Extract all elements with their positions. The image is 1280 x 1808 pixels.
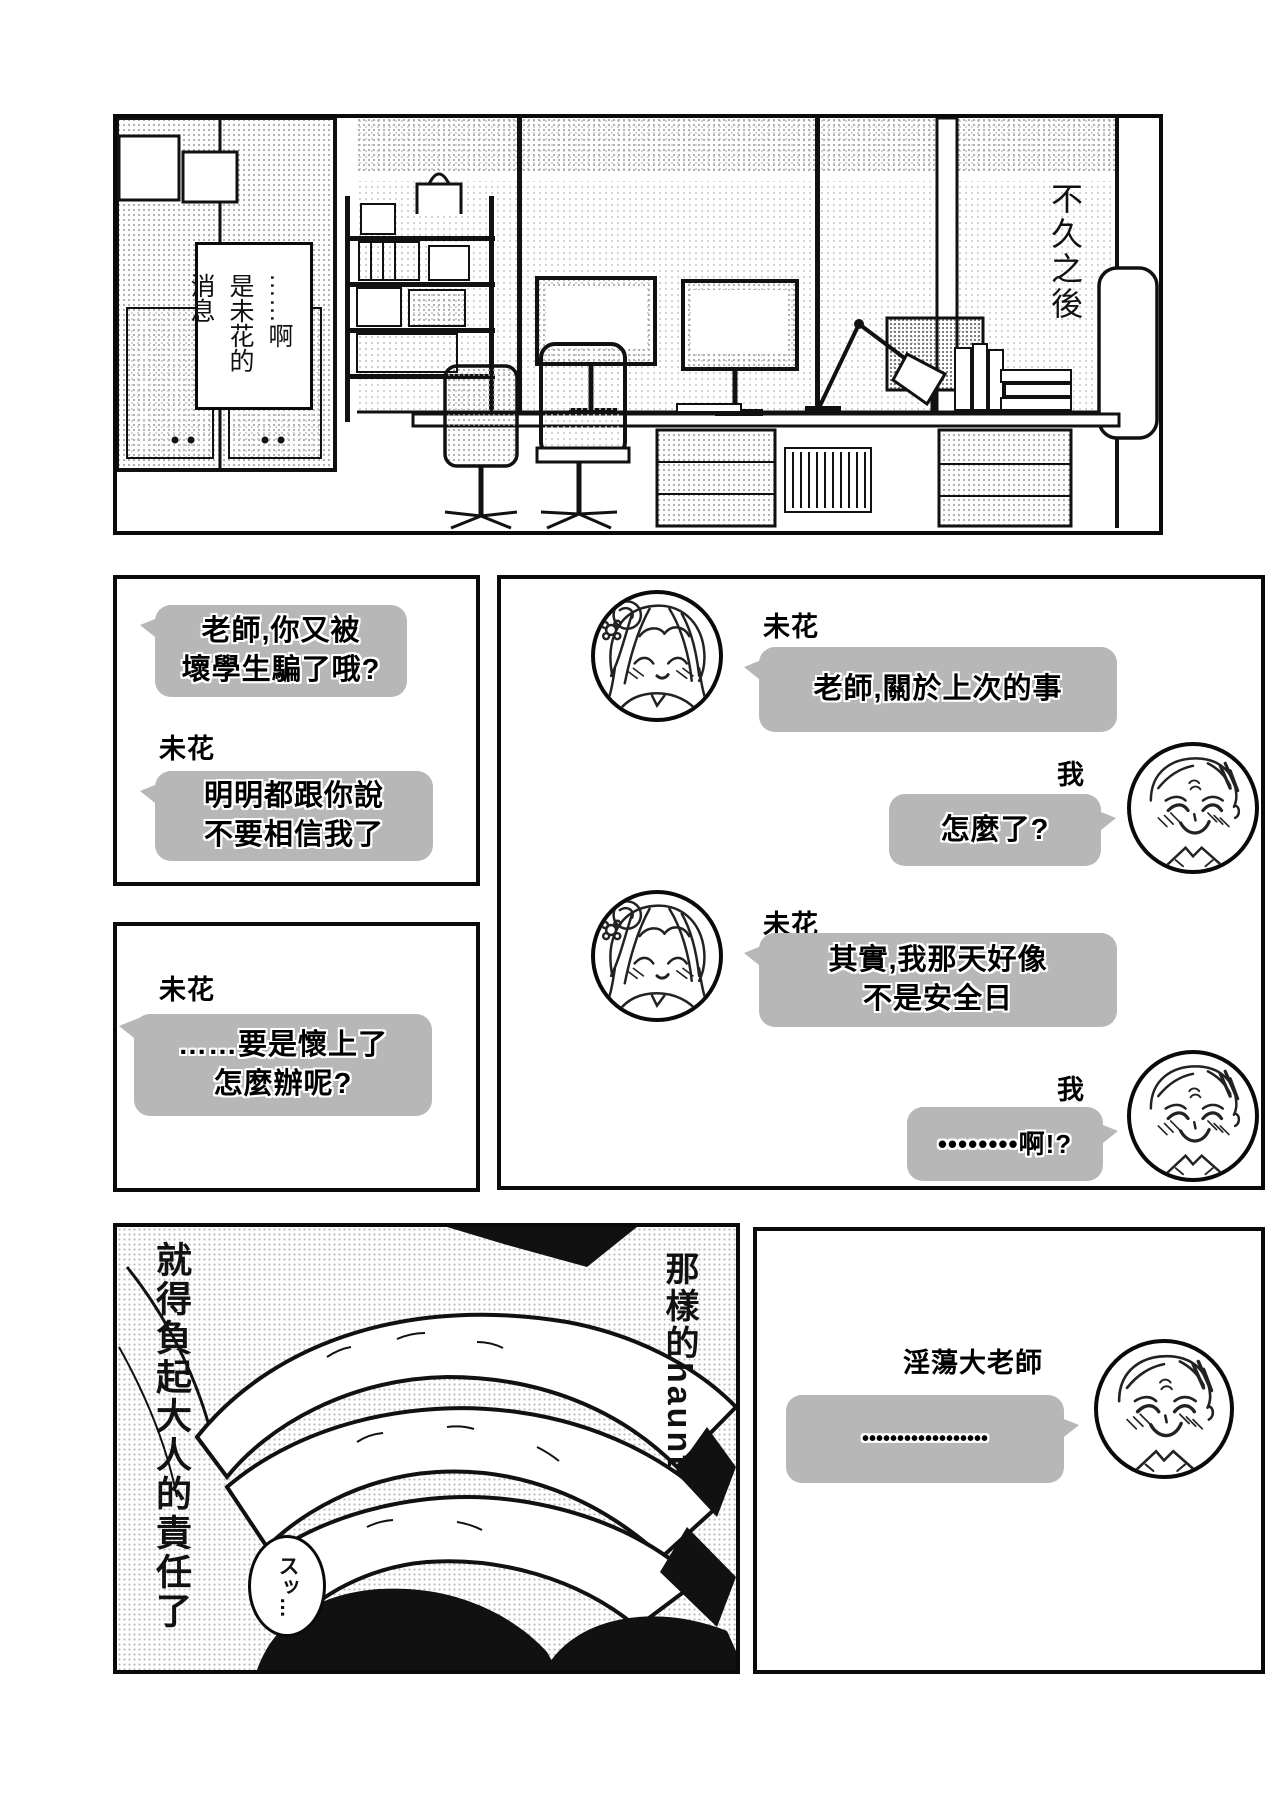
sender-name: 未花 — [763, 605, 819, 644]
chat-bubble: 明明都跟你說 不要相信我了 — [155, 771, 433, 861]
bubble-text: 老師,關於上次的事 — [813, 670, 1062, 709]
panel-hand-closeup: 那樣的haunt 就得負起大人的責任了 スッ… — [113, 1223, 740, 1674]
bubble-text: 怎麼了? — [941, 811, 1050, 850]
girl-avatar-icon — [591, 590, 723, 722]
chat-bubble: 老師,你又被 壞學生騙了哦? — [155, 605, 407, 697]
caption-box: ……啊 是未花的 消息 — [195, 242, 313, 410]
bubble-text: 明明都跟你說 不要相信我了 — [204, 777, 384, 855]
bubble-text: ••••••••啊!? — [938, 1125, 1072, 1164]
sfx-text: スッ… — [272, 1555, 302, 1618]
bubble-tail — [119, 1018, 139, 1042]
bubble-text: 老師,你又被 壞學生騙了哦? — [182, 612, 381, 690]
bubble-tail — [140, 783, 160, 807]
chat-bubble: 其實,我那天好像 不是安全日 — [759, 933, 1117, 1027]
chat-bubble: 老師,關於上次的事 — [759, 647, 1117, 732]
sender-name: 淫蕩大老師 — [903, 1341, 1043, 1380]
panel-chat-right: 未花 老師,關於上次的事 我 怎麼了? 未花 其實,我那天好像 不是安全日 我 — [497, 575, 1265, 1190]
man-avatar-icon — [1094, 1339, 1234, 1479]
panel-chat-left-bottom: 未花 ……要是懷上了 怎麼辦呢? — [113, 922, 480, 1192]
girl-avatar-icon — [591, 890, 723, 1022]
sender-name: 未花 — [159, 727, 215, 766]
manga-page: 不久之後 ……啊 是未花的 消息 老師,你又被 壞學生騙了哦? 未花 明明都跟你… — [0, 0, 1280, 1808]
bubble-tail — [140, 617, 160, 641]
man-avatar-icon — [1127, 1050, 1259, 1182]
bubble-tail — [1096, 810, 1116, 834]
chat-bubble: ••••••••啊!? — [907, 1107, 1103, 1181]
inner-monologue-right: 那樣的haunt — [655, 1251, 704, 1551]
chat-bubble: ……要是懷上了 怎麼辦呢? — [134, 1014, 432, 1116]
hand-art — [117, 1227, 736, 1670]
bubble-tail — [1098, 1123, 1118, 1147]
inner-monologue-left: 就得負起大人的責任了 — [145, 1241, 197, 1661]
sender-name: 我 — [1057, 753, 1085, 792]
panel-chat-bottom-right: 淫蕩大老師 •••••••••••••••••• — [753, 1227, 1265, 1674]
bubble-text: •••••••••••••••••• — [862, 1420, 988, 1459]
man-avatar-icon — [1127, 742, 1259, 874]
bubble-tail — [744, 945, 764, 969]
bubble-tail — [744, 659, 764, 683]
bubble-text: 其實,我那天好像 不是安全日 — [828, 941, 1047, 1019]
sender-name: 我 — [1057, 1068, 1085, 1107]
chat-bubble: 怎麼了? — [889, 794, 1101, 866]
sender-name: 未花 — [159, 968, 215, 1007]
bubble-tail — [1059, 1417, 1079, 1441]
narration-soon-after: 不久之後 — [1042, 182, 1088, 342]
panel-chat-left-top: 老師,你又被 壞學生騙了哦? 未花 明明都跟你說 不要相信我了 — [113, 575, 480, 886]
chat-bubble: •••••••••••••••••• — [786, 1395, 1064, 1483]
bubble-text: ……要是懷上了 怎麼辦呢? — [178, 1026, 388, 1104]
sfx-bubble: スッ… — [248, 1535, 326, 1637]
